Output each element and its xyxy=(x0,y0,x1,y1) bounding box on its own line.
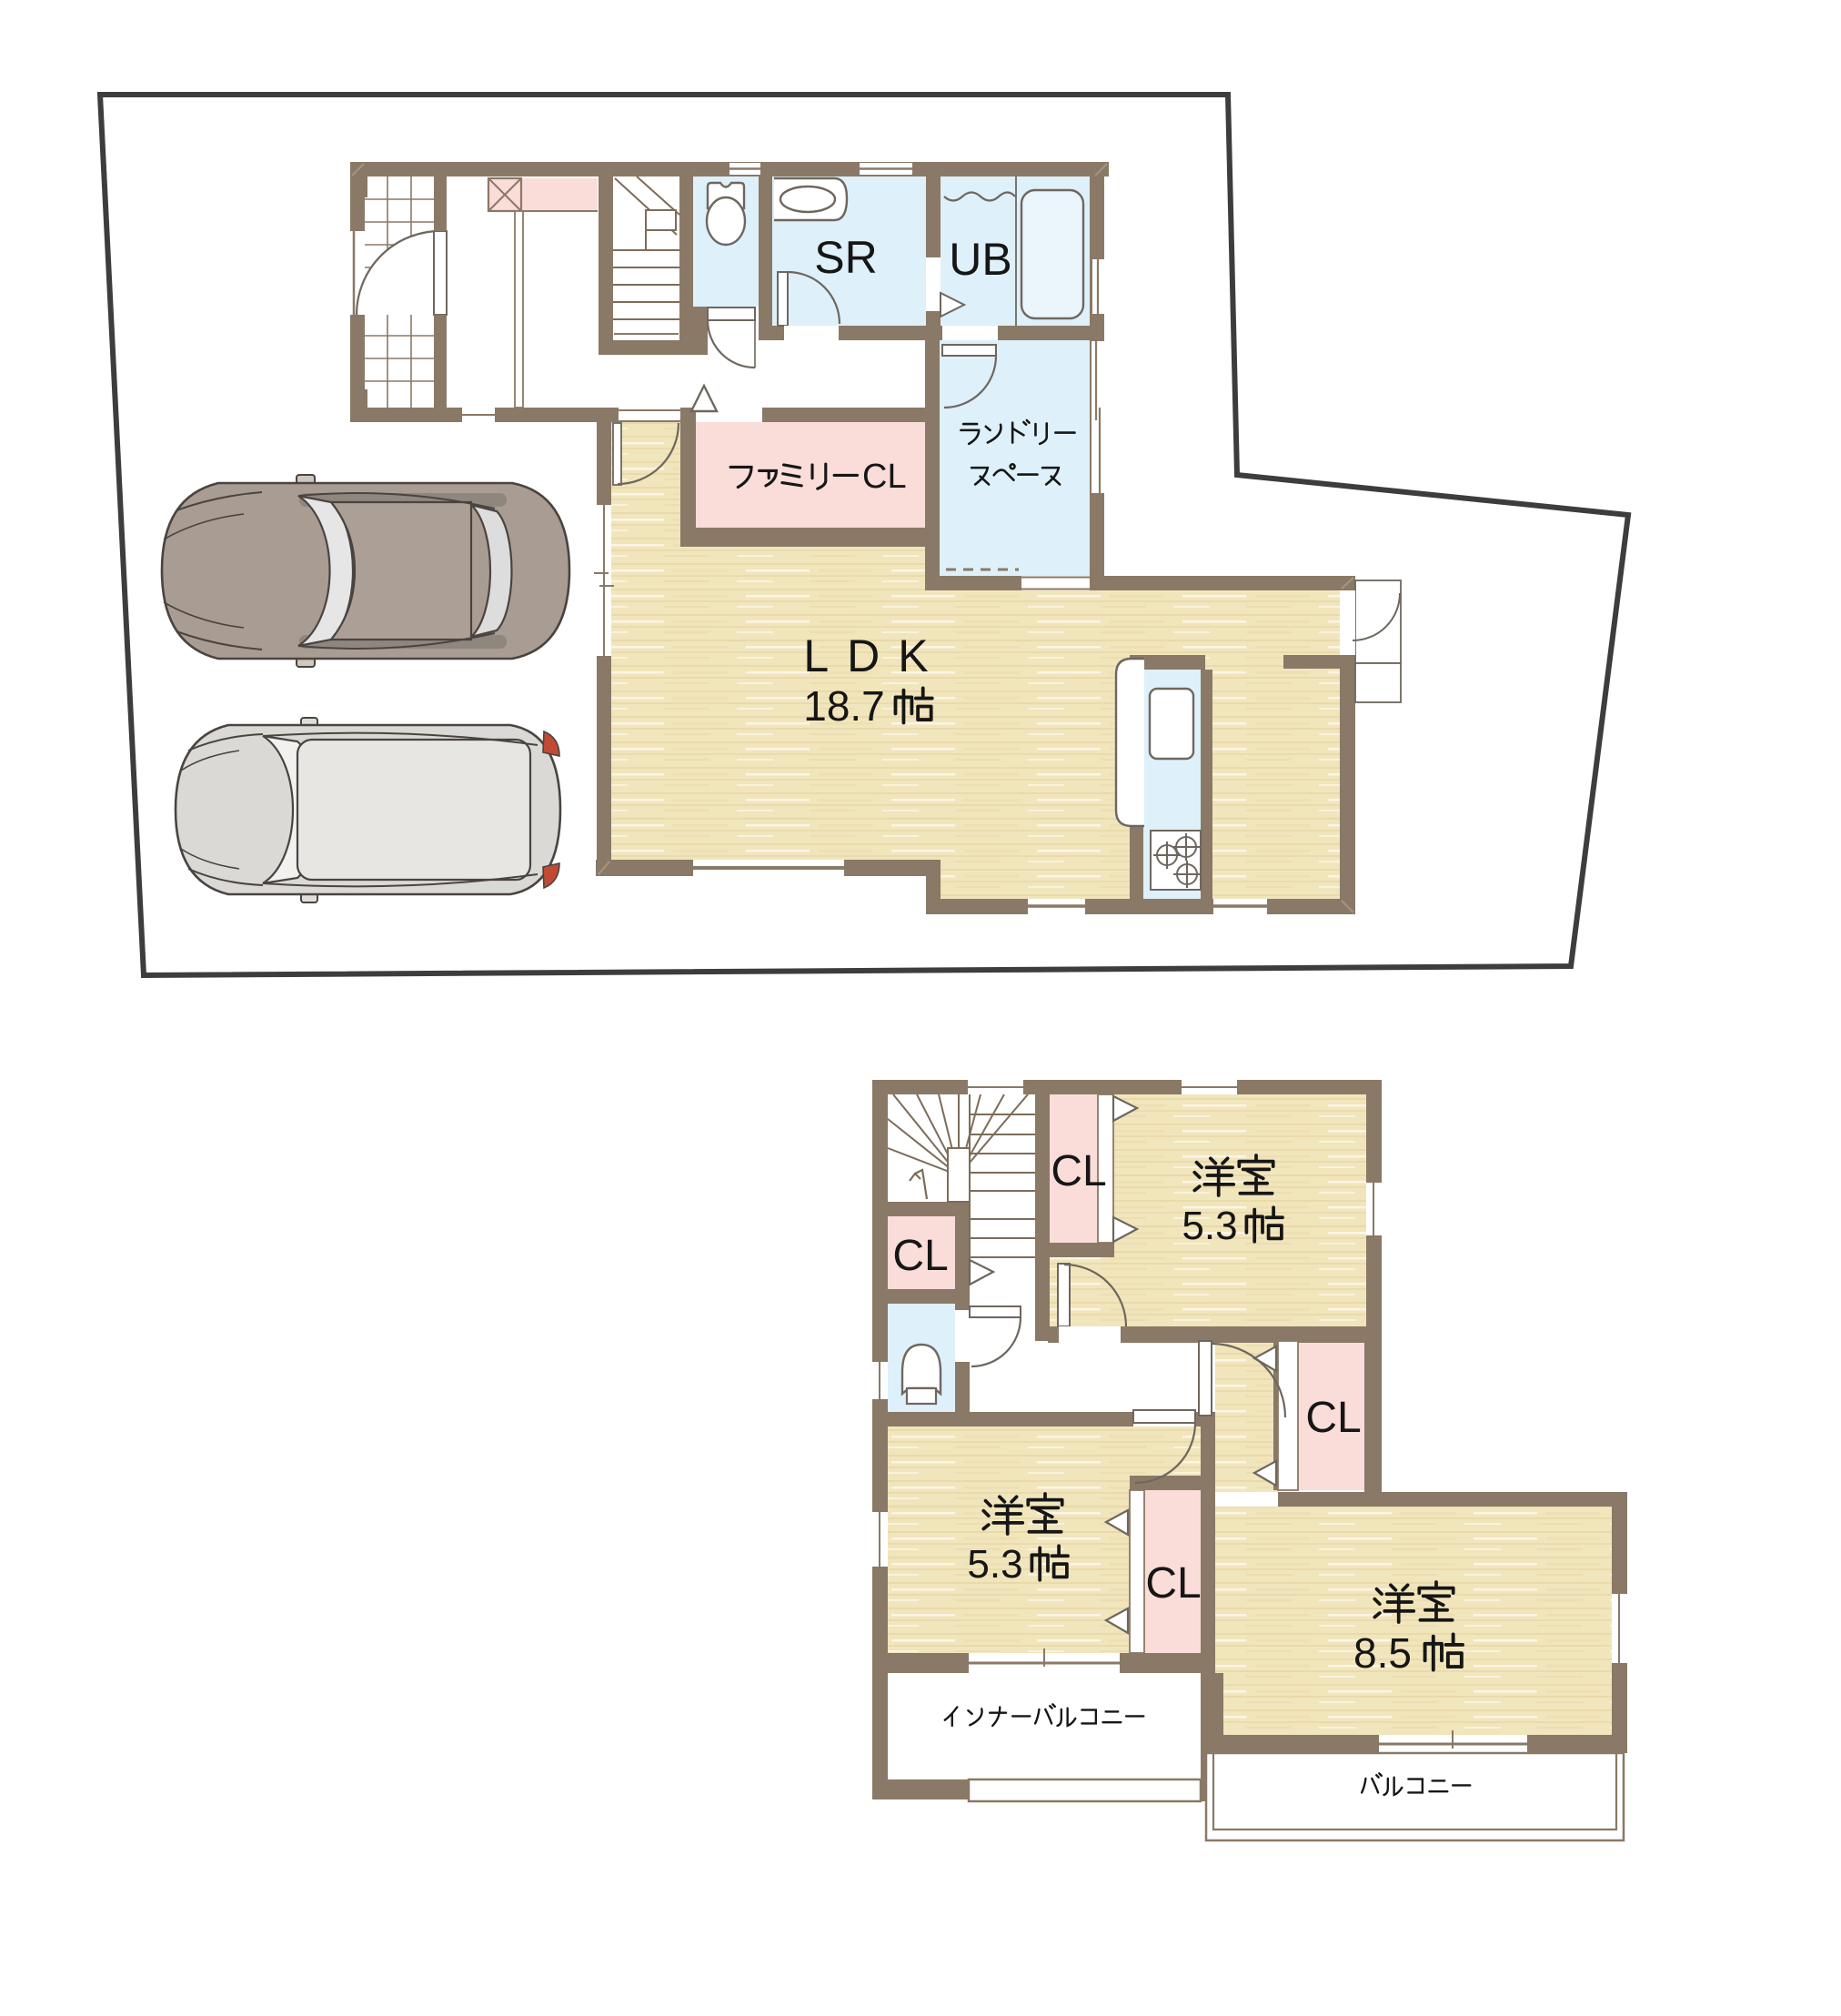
svg-text:CL: CL xyxy=(862,458,907,496)
svg-text:LDK: LDK xyxy=(803,630,946,681)
svg-text:8.5: 8.5 xyxy=(1353,1629,1412,1677)
svg-text:CL: CL xyxy=(1305,1394,1361,1442)
svg-text:CL: CL xyxy=(1145,1559,1201,1608)
svg-text:UB: UB xyxy=(949,234,1011,285)
svg-text:SR: SR xyxy=(814,232,877,283)
svg-text:18.7: 18.7 xyxy=(803,682,885,730)
svg-text:CL: CL xyxy=(892,1232,948,1280)
svg-text:5.3: 5.3 xyxy=(967,1542,1022,1587)
svg-text:5.3: 5.3 xyxy=(1182,1204,1237,1248)
svg-text:CL: CL xyxy=(1051,1147,1106,1195)
